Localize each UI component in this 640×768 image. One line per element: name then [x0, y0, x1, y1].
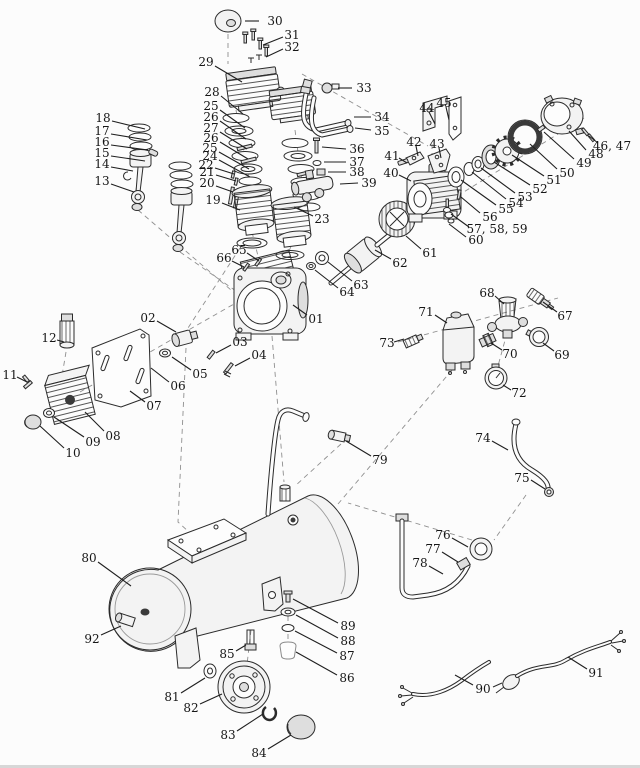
part-label-36: 36: [349, 142, 364, 156]
part-washer-87: [282, 625, 294, 632]
part-end-cover-48: [541, 95, 584, 134]
part-label-50: 50: [559, 166, 574, 180]
part-label-40: 40: [383, 166, 398, 180]
part-label-45: 45: [436, 96, 451, 110]
part-label-02: 02: [140, 311, 155, 325]
part-label-18: 18: [95, 111, 110, 125]
part-label-64: 64: [339, 285, 355, 299]
part-label-73: 73: [379, 336, 394, 350]
part-label-01: 01: [308, 312, 323, 326]
part-label-79: 79: [372, 453, 387, 467]
part-label-51: 51: [546, 173, 561, 187]
part-label-85: 85: [219, 647, 234, 661]
part-label-33: 33: [356, 81, 371, 95]
part-label-70: 70: [502, 347, 517, 361]
part-label-29: 29: [198, 55, 213, 69]
part-label-06: 06: [170, 379, 185, 393]
part-label-76: 76: [435, 528, 450, 542]
part-label-10: 10: [65, 446, 80, 460]
part-label-84: 84: [251, 746, 267, 760]
part-air-filter-cap-30: [215, 10, 241, 32]
part-label-75: 75: [514, 471, 529, 485]
part-label-44: 44: [419, 101, 435, 115]
part-washer-09: [44, 409, 55, 418]
part-check-valve-76: [470, 538, 492, 560]
part-label-04: 04: [251, 348, 267, 362]
part-label-60: 60: [468, 233, 483, 247]
part-label-07: 07: [146, 399, 161, 413]
part-tank-port-fitting: [280, 485, 290, 501]
part-tube-nut-75: [545, 488, 554, 497]
part-label-92: 92: [84, 632, 99, 646]
part-label-81: 81: [164, 690, 179, 704]
part-label-12: 12: [41, 331, 56, 345]
part-label-41: 41: [384, 149, 399, 163]
part-label-13: 13: [94, 174, 109, 188]
part-label-90: 90: [475, 682, 490, 696]
part-filter-cartridge-12: [60, 314, 74, 348]
part-piston-rings-2: [169, 162, 193, 188]
part-wheel-82: [218, 661, 270, 713]
part-label-42: 42: [406, 135, 421, 149]
part-label-19: 19: [205, 193, 220, 207]
part-piston-2: [171, 188, 192, 206]
part-label-77: 77: [425, 542, 440, 556]
part-label-30: 30: [267, 14, 282, 28]
part-nut-38: [317, 169, 325, 175]
part-label-08: 08: [105, 429, 120, 443]
part-label-87: 87: [339, 649, 354, 663]
part-washer-81: [204, 664, 216, 678]
part-label-14: 14: [94, 157, 110, 171]
part-label-03: 03: [232, 335, 247, 349]
part-bearing-63: [316, 252, 329, 265]
part-label-80: 80: [81, 551, 96, 565]
part-label-69: 69: [554, 348, 569, 362]
part-washer-88: [281, 608, 295, 616]
part-label-62: 62: [392, 256, 407, 270]
part-label-71: 71: [418, 305, 433, 319]
part-washer-64: [307, 263, 316, 270]
part-label-88: 88: [340, 634, 355, 648]
part-label-23: 23: [314, 212, 329, 226]
part-label-49: 49: [576, 156, 591, 170]
part-rubber-foot-86: [280, 642, 296, 659]
part-axle-bolt-85: [245, 630, 256, 650]
part-label-91: 91: [588, 666, 603, 680]
part-label-35: 35: [374, 124, 389, 138]
part-washer-37: [313, 161, 321, 166]
part-label-63: 63: [353, 278, 368, 292]
part-label-55: 55: [498, 202, 513, 216]
part-label-52: 52: [532, 182, 547, 196]
diagram-page: 3031322933343518171615141328252627262524…: [0, 0, 640, 768]
part-label-65: 65: [231, 243, 246, 257]
part-label-86: 86: [339, 671, 354, 685]
part-label-66: 66: [216, 251, 231, 265]
part-label-34: 34: [374, 110, 390, 124]
part-label-43: 43: [429, 137, 444, 151]
part-label-11: 11: [2, 368, 17, 382]
part-label-68: 68: [479, 286, 494, 300]
part-label-61: 61: [422, 246, 437, 260]
part-label-67: 67: [557, 309, 572, 323]
part-label-39: 39: [361, 176, 376, 190]
part-cap-10: [25, 415, 41, 429]
part-label-82: 82: [183, 701, 198, 715]
part-label-09: 09: [85, 435, 100, 449]
part-label-72: 72: [511, 386, 526, 400]
exploded-parts-diagram: 3031322933343518171615141328252627262524…: [0, 0, 640, 768]
part-label-05: 05: [192, 367, 207, 381]
part-label-74: 74: [475, 431, 491, 445]
part-label-28: 28: [204, 85, 219, 99]
part-label-32: 32: [284, 40, 299, 54]
part-label-83: 83: [220, 728, 235, 742]
part-label-20: 20: [199, 176, 214, 190]
part-washer-05: [160, 349, 171, 357]
part-label-78: 78: [412, 556, 427, 570]
part-label-89: 89: [340, 619, 355, 633]
